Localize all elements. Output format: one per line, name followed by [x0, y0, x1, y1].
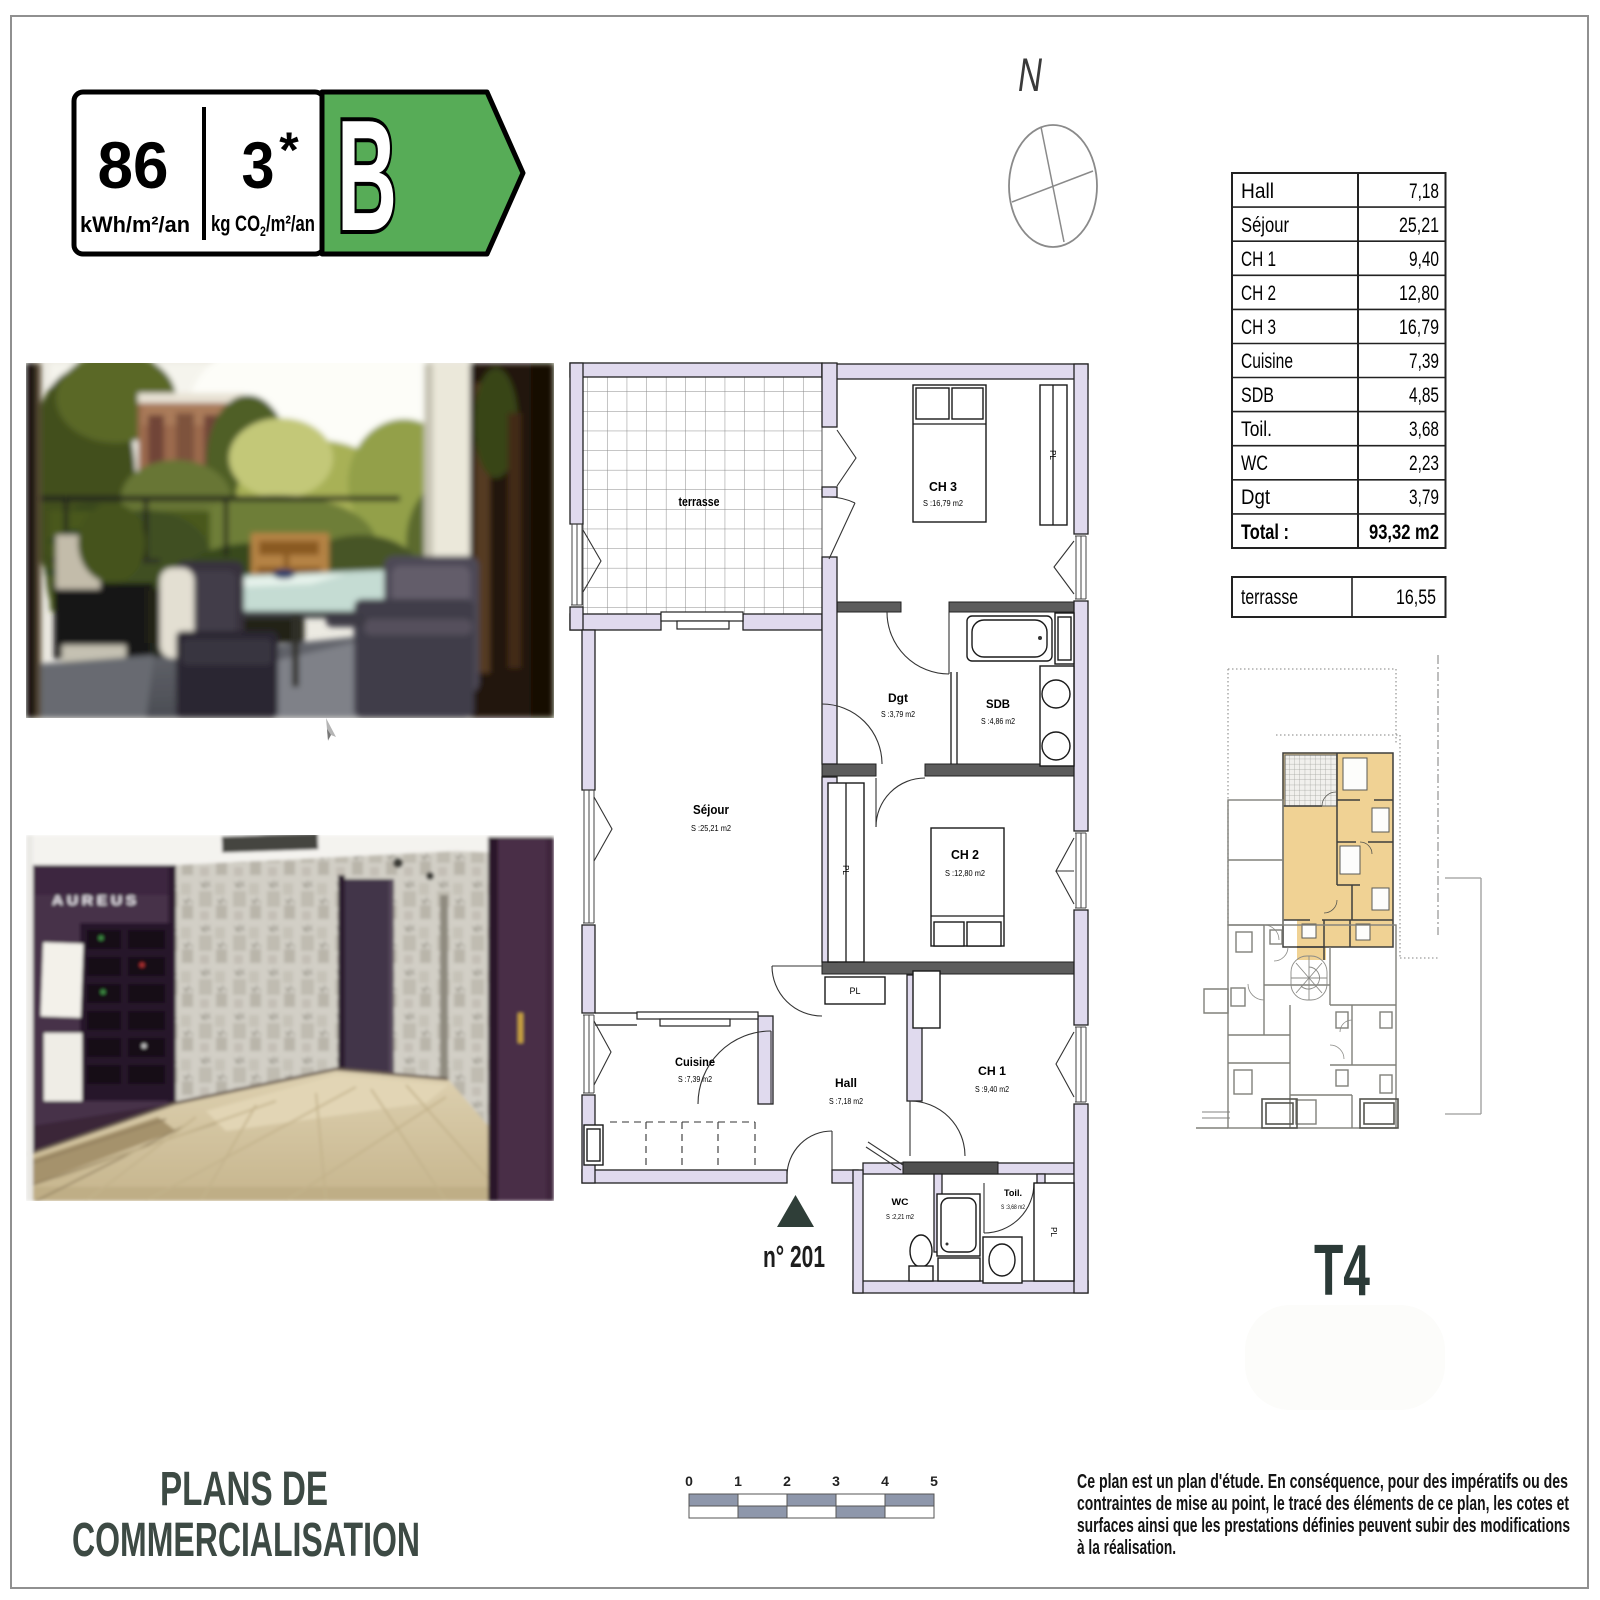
svg-text:terrasse: terrasse — [679, 494, 720, 509]
svg-text:COMMERCIALISATION: COMMERCIALISATION — [72, 1514, 420, 1567]
svg-text:surfaces ainsi que les prestat: surfaces ainsi que les prestations défin… — [1077, 1515, 1570, 1537]
svg-text:Ce plan est un plan d'étude. E: Ce plan est un plan d'étude. En conséque… — [1077, 1471, 1568, 1493]
svg-text:Toil.: Toil. — [1241, 418, 1272, 441]
svg-text:2: 2 — [783, 1473, 791, 1489]
svg-text:Total :: Total : — [1241, 521, 1289, 544]
svg-text:2,23: 2,23 — [1409, 452, 1439, 475]
svg-text:à la réalisation.: à la réalisation. — [1077, 1537, 1176, 1559]
svg-text:3: 3 — [242, 128, 275, 202]
svg-text:Hall: Hall — [835, 1076, 857, 1090]
svg-text:12,80: 12,80 — [1399, 282, 1439, 305]
svg-text:5: 5 — [930, 1473, 938, 1489]
svg-text:S :2,21 m2: S :2,21 m2 — [886, 1214, 914, 1221]
svg-text:S :25,21 m2: S :25,21 m2 — [691, 823, 731, 833]
svg-text:PLANS DE: PLANS DE — [160, 1463, 328, 1516]
svg-text:Cuisine: Cuisine — [1241, 350, 1293, 373]
svg-text:WC: WC — [892, 1197, 910, 1207]
svg-text:N: N — [1018, 48, 1042, 101]
svg-text:SDB: SDB — [1241, 384, 1274, 407]
svg-text:terrasse: terrasse — [1241, 586, 1298, 609]
svg-text:B: B — [337, 88, 397, 264]
svg-text:CH 1: CH 1 — [1241, 248, 1276, 271]
svg-text:PL: PL — [1048, 450, 1057, 460]
svg-text:SDB: SDB — [986, 697, 1010, 711]
svg-text:Cuisine: Cuisine — [675, 1055, 715, 1069]
svg-text:4: 4 — [881, 1473, 889, 1489]
svg-text:CH 2: CH 2 — [1241, 282, 1276, 305]
svg-text:25,21: 25,21 — [1399, 214, 1439, 237]
svg-text:PL: PL — [849, 986, 860, 996]
svg-text:4,85: 4,85 — [1409, 384, 1439, 407]
svg-text:Séjour: Séjour — [693, 802, 729, 817]
svg-text:0: 0 — [685, 1473, 693, 1489]
svg-text:CH 3: CH 3 — [1241, 316, 1276, 339]
svg-text:Toil.: Toil. — [1004, 1188, 1022, 1198]
svg-text:AUREUS: AUREUS — [52, 892, 140, 908]
svg-text:T4: T4 — [1314, 1231, 1370, 1311]
svg-text:S :16,79 m2: S :16,79 m2 — [923, 498, 963, 508]
svg-text:86: 86 — [98, 128, 169, 202]
svg-text:3,68: 3,68 — [1409, 418, 1439, 441]
svg-text:3: 3 — [832, 1473, 840, 1489]
svg-text:n° 201: n° 201 — [763, 1239, 825, 1274]
svg-text:PL: PL — [841, 865, 850, 875]
svg-text:7,18: 7,18 — [1409, 180, 1439, 203]
svg-text:S :4,86 m2: S :4,86 m2 — [981, 717, 1015, 726]
svg-text:9,40: 9,40 — [1409, 248, 1439, 271]
svg-text:PL: PL — [1049, 1227, 1058, 1237]
svg-text:Dgt: Dgt — [888, 691, 908, 705]
svg-text:3,79: 3,79 — [1409, 486, 1439, 509]
svg-text:S :7,39 m2: S :7,39 m2 — [678, 1075, 712, 1084]
svg-text:S :9,40 m2: S :9,40 m2 — [975, 1085, 1009, 1094]
svg-text:7,39: 7,39 — [1409, 350, 1439, 373]
svg-text:CH 2: CH 2 — [951, 847, 979, 862]
svg-text:S :3,68 m2: S :3,68 m2 — [1001, 1204, 1025, 1211]
svg-text:WC: WC — [1241, 452, 1268, 475]
svg-text:CH 1: CH 1 — [978, 1064, 1006, 1078]
svg-text:*: * — [279, 122, 299, 178]
svg-text:kWh/m²/an: kWh/m²/an — [80, 212, 190, 237]
svg-text:contraintes de mise au point,: contraintes de mise au point, le tracé d… — [1077, 1493, 1569, 1515]
svg-text:Hall: Hall — [1241, 180, 1274, 203]
svg-text:93,32 m2: 93,32 m2 — [1369, 521, 1439, 544]
svg-text:Dgt: Dgt — [1241, 486, 1270, 509]
svg-text:CH 3: CH 3 — [929, 479, 957, 494]
svg-text:16,55: 16,55 — [1396, 586, 1436, 609]
svg-text:Séjour: Séjour — [1241, 214, 1289, 237]
svg-text:1: 1 — [734, 1473, 742, 1489]
svg-text:S :3,79 m2: S :3,79 m2 — [881, 710, 915, 719]
svg-text:S :12,80 m2: S :12,80 m2 — [945, 868, 985, 878]
svg-text:S :7,18 m2: S :7,18 m2 — [829, 1097, 863, 1106]
svg-text:16,79: 16,79 — [1399, 316, 1439, 339]
